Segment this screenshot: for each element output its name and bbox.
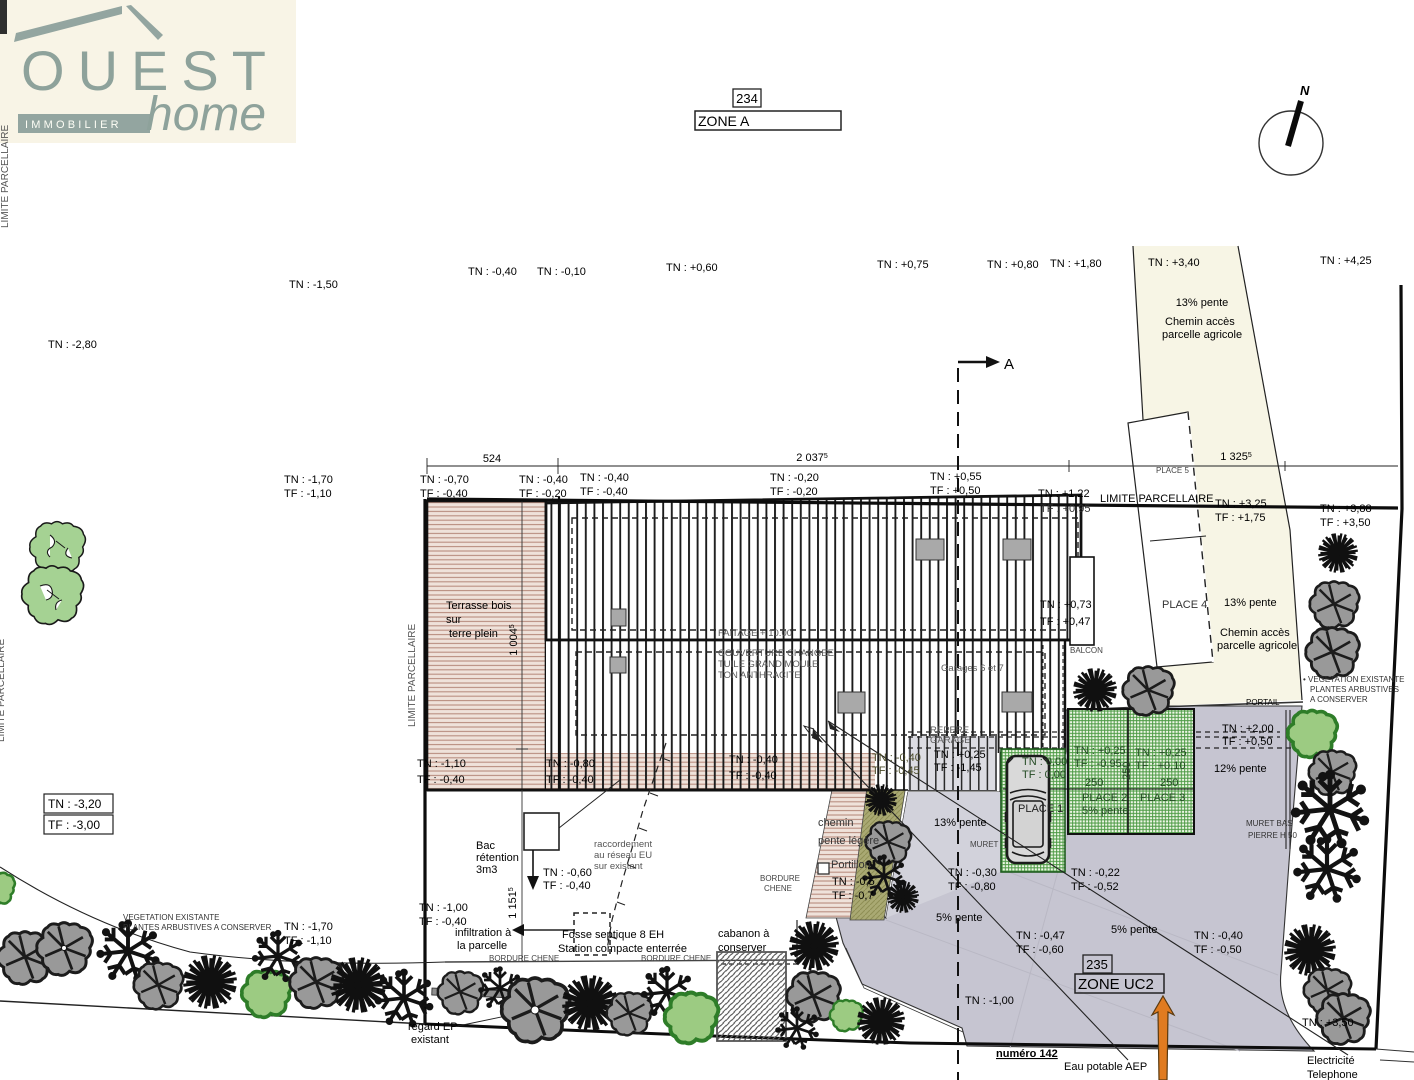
svg-text:chemin: chemin — [818, 817, 853, 829]
svg-text:rétention: rétention — [476, 852, 519, 864]
svg-text:LIMITE PARCELLAIRE: LIMITE PARCELLAIRE — [407, 623, 418, 727]
svg-text:TN : -0,40: TN : -0,40 — [1194, 930, 1243, 942]
svg-text:TN : -0,60: TN : -0,60 — [543, 867, 592, 879]
svg-text:COUVERTURE CHANGEE: COUVERTURE CHANGEE — [718, 648, 834, 659]
svg-text:250: 250 — [1085, 777, 1103, 789]
svg-text:TN : +0,80: TN : +0,80 — [987, 259, 1039, 271]
svg-text:250: 250 — [1160, 777, 1178, 789]
svg-text:TF : -0,60: TF : -0,60 — [1016, 944, 1064, 956]
svg-text:Garages 6 et 7: Garages 6 et 7 — [941, 663, 1004, 674]
svg-text:GARAGE: GARAGE — [930, 735, 971, 746]
svg-text:TN : -0,80: TN : -0,80 — [546, 758, 595, 770]
svg-text:PIERRE H 50: PIERRE H 50 — [1248, 831, 1297, 840]
svg-text:Eau potable AEP: Eau potable AEP — [1064, 1061, 1147, 1073]
svg-text:Chemin accès: Chemin accès — [1220, 627, 1290, 639]
svg-text:• VEGETATION EXISTANTE: • VEGETATION EXISTANTE — [1303, 675, 1404, 684]
svg-text:TN : +3,88: TN : +3,88 — [1320, 503, 1372, 515]
svg-text:TF : -0,40: TF : -0,40 — [580, 486, 628, 498]
svg-text:2 0375: 2 0375 — [796, 452, 828, 464]
svg-text:FAITAGE + 10.00: FAITAGE + 10.00 — [718, 628, 792, 639]
svg-text:PLACE 1: PLACE 1 — [1018, 803, 1063, 815]
svg-text:parcelle agricole: parcelle agricole — [1217, 640, 1297, 652]
svg-text:MURET BAS: MURET BAS — [1246, 819, 1293, 828]
svg-text:TF : +0,50: TF : +0,50 — [930, 485, 980, 497]
svg-text:numéro 142: numéro 142 — [996, 1048, 1058, 1060]
svg-text:TN : +0,73: TN : +0,73 — [1040, 599, 1092, 611]
svg-text:TN : -0,5: TN : -0,5 — [832, 876, 875, 888]
svg-text:raccordement: raccordement — [594, 839, 652, 850]
svg-text:TN : -0,30: TN : -0,30 — [948, 867, 997, 879]
svg-text:TN : +0,55: TN : +0,55 — [930, 471, 982, 483]
svg-text:TF : -1,10: TF : -1,10 — [284, 935, 332, 947]
svg-text:13% pente: 13% pente — [1224, 597, 1277, 609]
svg-text:TF : +1,75: TF : +1,75 — [1215, 512, 1265, 524]
svg-text:TN : +0,25: TN : +0,25 — [1135, 747, 1187, 759]
svg-text:524: 524 — [483, 453, 501, 465]
svg-text:BORDURE: BORDURE — [760, 874, 800, 883]
svg-text:PLANTES ARBUSTIVES: PLANTES ARBUSTIVES — [1310, 685, 1399, 694]
svg-text:TN : +3,25: TN : +3,25 — [1215, 498, 1267, 510]
svg-text:Portillon: Portillon — [831, 859, 871, 871]
svg-text:home: home — [146, 88, 266, 141]
svg-text:TN : -0,20: TN : -0,20 — [770, 472, 819, 484]
svg-text:TN : -1,00: TN : -1,00 — [419, 902, 468, 914]
svg-text:TF : +3,50: TF : +3,50 — [1320, 517, 1370, 529]
svg-text:TF : -0,7: TF : -0,7 — [832, 890, 874, 902]
svg-text:TF : -0,40: TF : -0,40 — [546, 774, 594, 786]
svg-text:1 1515: 1 1515 — [507, 887, 519, 919]
svg-text:pente légère: pente légère — [818, 835, 879, 847]
svg-text:12% pente: 12% pente — [1214, 763, 1267, 775]
svg-text:TF : -0,80: TF : -0,80 — [948, 881, 996, 893]
svg-text:TF : +0,95: TF : +0,95 — [1040, 503, 1090, 515]
svg-text:13% pente: 13% pente — [934, 817, 987, 829]
svg-text:sur existant: sur existant — [594, 861, 643, 872]
svg-text:sur: sur — [446, 614, 462, 626]
svg-text:TN : -3,20: TN : -3,20 — [48, 797, 102, 811]
svg-text:la parcelle: la parcelle — [457, 940, 507, 952]
svg-text:CHENE: CHENE — [764, 884, 792, 893]
svg-text:terre plein: terre plein — [449, 628, 498, 640]
svg-text:infiltration à: infiltration à — [455, 927, 512, 939]
svg-text:PLACE 4: PLACE 4 — [1162, 599, 1207, 611]
svg-text:TN : -1,70: TN : -1,70 — [284, 921, 333, 933]
svg-text:A CONSERVER: A CONSERVER — [1310, 695, 1368, 704]
svg-text:5% pente: 5% pente — [936, 912, 982, 924]
svg-text:Fosse septique 8 EH: Fosse septique 8 EH — [562, 929, 664, 941]
svg-text:TF : -1,10: TF : -1,10 — [284, 488, 332, 500]
svg-text:TN : -1,50: TN : -1,50 — [289, 279, 338, 291]
svg-text:TF : -0,40: TF : -0,40 — [729, 770, 777, 782]
svg-text:TN : -0,40: TN : -0,40 — [580, 472, 629, 484]
svg-text:TON ANTHRACITE: TON ANTHRACITE — [718, 670, 801, 681]
svg-text:TF : +0,50: TF : +0,50 — [1222, 736, 1272, 748]
svg-text:TF : -0,40: TF : -0,40 — [543, 880, 591, 892]
svg-text:TN : +1,22: TN : +1,22 — [1038, 488, 1090, 500]
svg-text:TF : 0,00: TF : 0,00 — [1022, 769, 1066, 781]
svg-text:TN : +0,25: TN : +0,25 — [934, 749, 986, 761]
svg-text:BORDURE CHENE: BORDURE CHENE — [641, 954, 711, 963]
svg-text:TF : -0,50: TF : -0,50 — [1194, 944, 1242, 956]
svg-text:TN : +0,60: TN : +0,60 — [666, 262, 718, 274]
svg-text:TF : -0,45: TF : -0,45 — [872, 765, 920, 777]
svg-text:LIMITE PARCELLAIRE: LIMITE PARCELLAIRE — [0, 124, 11, 228]
svg-text:TN : +2,00: TN : +2,00 — [1222, 723, 1274, 735]
svg-text:ZONE A: ZONE A — [698, 113, 750, 129]
svg-text:parcelle agricole: parcelle agricole — [1162, 329, 1242, 341]
svg-text:A: A — [1004, 356, 1014, 373]
svg-text:TN : -1,70: TN : -1,70 — [284, 474, 333, 486]
svg-text:PLACE 2: PLACE 2 — [1082, 792, 1127, 804]
svg-text:TN : 0,00: TN : 0,00 — [1022, 756, 1067, 768]
svg-text:PLANTES ARBUSTIVES A CONSERVER: PLANTES ARBUSTIVES A CONSERVER — [123, 923, 272, 932]
svg-text:1 3255: 1 3255 — [1220, 451, 1252, 463]
svg-text:TF : +0,10: TF : +0,10 — [1135, 760, 1185, 772]
svg-text:5% pente: 5% pente — [1111, 924, 1157, 936]
svg-text:TF : -0,40: TF : -0,40 — [417, 774, 465, 786]
svg-text:TN : -1,10: TN : -1,10 — [417, 758, 466, 770]
svg-text:250: 250 — [1121, 762, 1133, 780]
svg-text:Electricité: Electricité — [1307, 1055, 1355, 1067]
svg-text:234: 234 — [736, 91, 758, 106]
svg-text:TN : +1,80: TN : +1,80 — [1050, 258, 1102, 270]
svg-text:MURET: MURET — [970, 840, 999, 849]
svg-text:PLACE 5: PLACE 5 — [1156, 466, 1189, 475]
svg-text:TF : -3,00: TF : -3,00 — [48, 818, 100, 832]
svg-text:Chemin accès: Chemin accès — [1165, 316, 1235, 328]
svg-text:5% pente: 5% pente — [1082, 805, 1128, 817]
svg-text:Terrasse bois: Terrasse bois — [446, 600, 512, 612]
svg-text:TF : +0,47: TF : +0,47 — [1040, 616, 1090, 628]
svg-text:Telephone: Telephone — [1307, 1069, 1358, 1080]
svg-text:IMMOBILIER: IMMOBILIER — [25, 119, 122, 131]
svg-text:ZONE UC2: ZONE UC2 — [1078, 976, 1154, 993]
svg-text:PLACE 3: PLACE 3 — [1140, 792, 1185, 804]
svg-text:TN : -0,70: TN : -0,70 — [420, 474, 469, 486]
svg-text:TF : -0,95: TF : -0,95 — [1074, 758, 1122, 770]
svg-text:existant: existant — [411, 1034, 449, 1046]
svg-text:3m3: 3m3 — [476, 864, 497, 876]
svg-text:Bac: Bac — [476, 840, 495, 852]
svg-text:TN : -0,40: TN : -0,40 — [519, 474, 568, 486]
svg-text:TN : -0,22: TN : -0,22 — [1071, 867, 1120, 879]
svg-text:PORTAIL: PORTAIL — [1246, 698, 1280, 707]
svg-text:TN : +0,25: TN : +0,25 — [1074, 745, 1126, 757]
svg-text:TF : -0,40: TF : -0,40 — [420, 488, 468, 500]
svg-text:TUILE GRAND MOULE: TUILE GRAND MOULE — [718, 659, 818, 670]
svg-text:TN : -0,47: TN : -0,47 — [1016, 930, 1065, 942]
svg-text:regard EP: regard EP — [408, 1021, 458, 1033]
svg-text:LIMITE PARCELLAIRE: LIMITE PARCELLAIRE — [0, 638, 7, 742]
svg-text:TF : -1,45: TF : -1,45 — [934, 762, 982, 774]
svg-text:TF : -0,52: TF : -0,52 — [1071, 881, 1119, 893]
svg-text:N: N — [1300, 83, 1310, 98]
svg-text:BALCON: BALCON — [1070, 646, 1103, 655]
svg-text:TN : +0,75: TN : +0,75 — [877, 259, 929, 271]
svg-text:TN : -2,80: TN : -2,80 — [48, 339, 97, 351]
svg-text:cabanon à: cabanon à — [718, 928, 770, 940]
svg-text:au réseau EU: au réseau EU — [594, 850, 652, 861]
svg-text:TN : -0,40: TN : -0,40 — [872, 752, 921, 764]
svg-text:235: 235 — [1086, 957, 1108, 972]
svg-text:BORDURE CHENE: BORDURE CHENE — [489, 954, 559, 963]
svg-text:TN : -0,40: TN : -0,40 — [468, 266, 517, 278]
svg-text:TN : -0,40: TN : -0,40 — [729, 754, 778, 766]
svg-text:TN : +4,25: TN : +4,25 — [1320, 255, 1372, 267]
svg-text:TF : -0,20: TF : -0,20 — [770, 486, 818, 498]
svg-text:LIMITE PARCELLAIRE: LIMITE PARCELLAIRE — [1100, 493, 1214, 505]
svg-text:TN : -0,10: TN : -0,10 — [537, 266, 586, 278]
svg-text:TF : -0,20: TF : -0,20 — [519, 488, 567, 500]
svg-text:VEGETATION EXISTANTE: VEGETATION EXISTANTE — [123, 913, 219, 922]
svg-text:13% pente: 13% pente — [1176, 297, 1229, 309]
svg-text:TN : +3,40: TN : +3,40 — [1148, 257, 1200, 269]
svg-text:TN : +3,50: TN : +3,50 — [1302, 1017, 1354, 1029]
svg-text:conserver: conserver — [718, 942, 767, 954]
svg-text:TN : -1,00: TN : -1,00 — [965, 995, 1014, 1007]
svg-text:1 0045: 1 0045 — [508, 624, 520, 656]
